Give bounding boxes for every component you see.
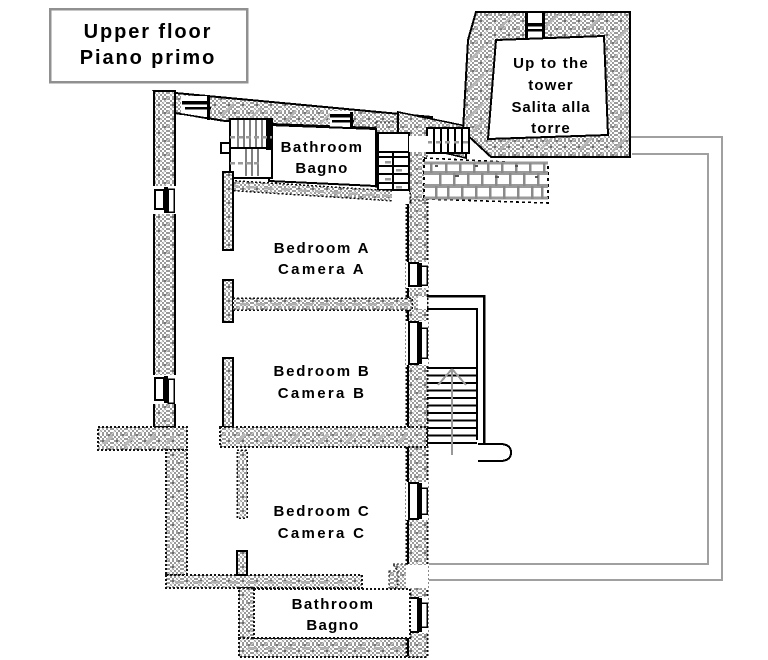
svg-text:Bathroom: Bathroom [281,139,364,156]
svg-text:Upper floor: Upper floor [84,21,213,43]
svg-text:Piano primo: Piano primo [80,47,216,69]
svg-text:Up to the: Up to the [513,55,589,72]
svg-text:Camera A: Camera A [278,261,366,278]
svg-text:Bedroom A: Bedroom A [274,240,370,257]
svg-text:Bathroom: Bathroom [292,596,375,613]
svg-text:Camera B: Camera B [278,385,366,402]
svg-text:Camera C: Camera C [278,525,366,542]
svg-text:Bagno: Bagno [306,617,359,634]
svg-text:tower: tower [528,77,574,94]
svg-text:Bedroom C: Bedroom C [273,503,370,520]
svg-text:Bedroom B: Bedroom B [273,363,370,380]
svg-text:torre: torre [531,120,571,137]
svg-text:Salita alla: Salita alla [511,99,590,116]
svg-text:Bagno: Bagno [295,160,348,177]
